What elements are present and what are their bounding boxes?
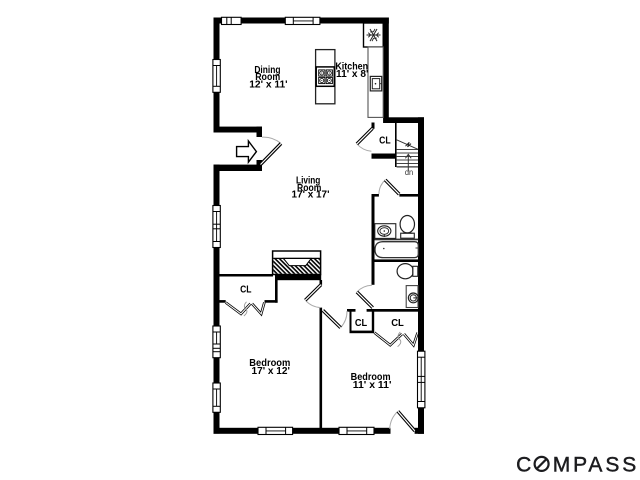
svg-text:11' x 8': 11' x 8' xyxy=(336,69,368,80)
svg-text:CL: CL xyxy=(355,318,367,329)
svg-text:MPASS: MPASS xyxy=(553,453,639,476)
svg-text:C: C xyxy=(516,453,533,476)
svg-text:dn: dn xyxy=(405,168,413,177)
svg-text:CL: CL xyxy=(391,318,404,329)
svg-text:CL: CL xyxy=(379,136,391,147)
svg-text:12' x 11': 12' x 11' xyxy=(249,79,287,90)
svg-text:11' x 11': 11' x 11' xyxy=(353,380,392,391)
svg-text:CL: CL xyxy=(240,285,251,296)
svg-text:17' x 12': 17' x 12' xyxy=(252,366,290,377)
svg-text:17' x 17': 17' x 17' xyxy=(292,190,330,201)
